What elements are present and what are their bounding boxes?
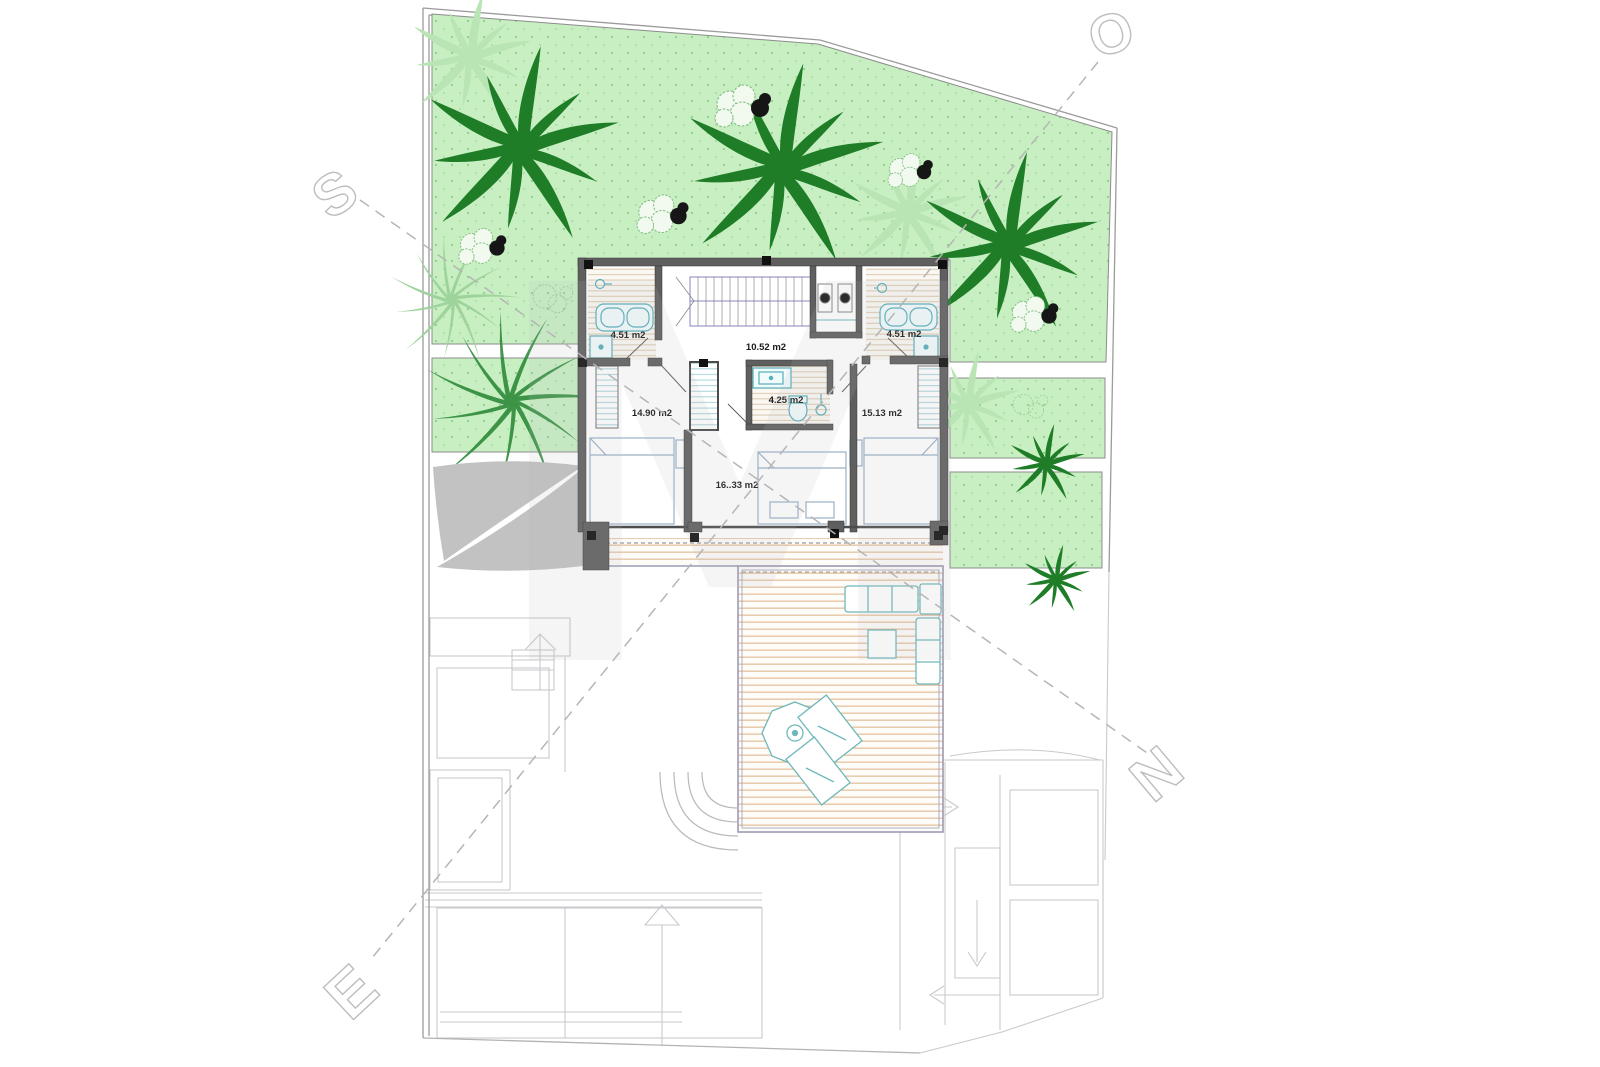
compass-letter-e: E bbox=[311, 951, 391, 1033]
compass-letter-o: O bbox=[1081, 0, 1142, 70]
curved-steps bbox=[660, 772, 738, 850]
compass-letter-n: N bbox=[1117, 733, 1196, 815]
compass-letter-s: S bbox=[300, 156, 369, 231]
watermark-logo: M bbox=[481, 177, 998, 783]
floor-plan-page: 4.51 m2 10.52 m2 4.51 m2 14.90 m2 4.25 m… bbox=[0, 0, 1600, 1067]
floor-plan-drawing: 4.51 m2 10.52 m2 4.51 m2 14.90 m2 4.25 m… bbox=[0, 0, 1600, 1067]
